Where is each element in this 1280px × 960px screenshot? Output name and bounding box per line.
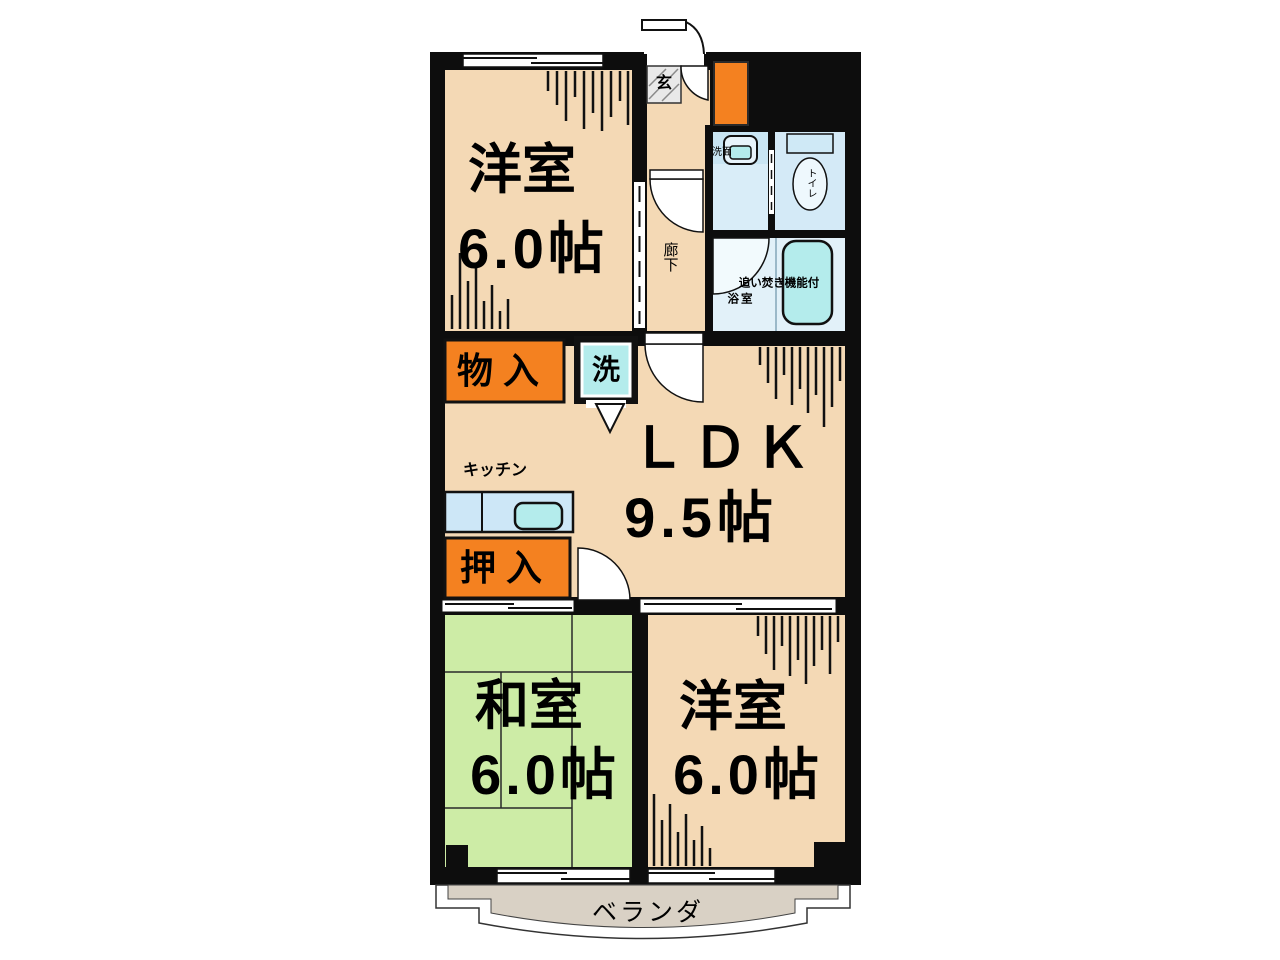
bath-feature-label: 追い焚き機能付 bbox=[739, 278, 820, 290]
entrance bbox=[642, 16, 708, 103]
room2-name: 洋室 bbox=[679, 680, 787, 734]
entrance-label: 玄 bbox=[656, 76, 672, 92]
room2-size: 6.0帖 bbox=[673, 747, 823, 803]
sliding-door-room1 bbox=[634, 182, 645, 328]
sliding-door-western-bottom bbox=[640, 599, 836, 613]
window-top bbox=[463, 54, 603, 67]
japanese-room-floor bbox=[445, 615, 632, 867]
toilet-label: トイレ bbox=[805, 168, 815, 198]
hallway-label: 廊下 bbox=[663, 242, 678, 272]
veranda-label: ベランダ bbox=[592, 901, 704, 926]
sliding-door-japanese bbox=[442, 600, 574, 612]
window-bottom-left bbox=[497, 869, 630, 883]
bath-label: 浴室 bbox=[728, 294, 755, 306]
pillar bbox=[446, 845, 468, 867]
washroom-label: 洗面 bbox=[712, 148, 732, 158]
room1-name: 洋室 bbox=[468, 143, 576, 197]
floorplan-page: 洋室 6.0帖 ＬＤＫ 9.5帖 和室 6.0帖 洋室 6.0帖 物入 押入 洗… bbox=[0, 0, 1280, 960]
japanese-room-name: 和室 bbox=[475, 679, 583, 733]
shoe-cabinet bbox=[714, 62, 748, 125]
room1-size: 6.0帖 bbox=[458, 221, 608, 277]
pillar bbox=[814, 842, 845, 867]
window-bottom-right bbox=[648, 869, 775, 883]
kitchen-sink bbox=[515, 503, 562, 529]
laundry-label: 洗 bbox=[592, 356, 620, 384]
floorplan-drawing bbox=[0, 0, 1280, 960]
toilet-tank bbox=[787, 134, 833, 153]
toilet-door bbox=[769, 150, 774, 214]
storage-label: 物入 bbox=[457, 353, 549, 389]
japanese-room-size: 6.0帖 bbox=[470, 747, 620, 803]
ldk-name: ＬＤＫ bbox=[630, 420, 816, 476]
closet-label: 押入 bbox=[460, 550, 552, 586]
ldk-size: 9.5帖 bbox=[624, 490, 778, 546]
entrance-door-leaf bbox=[642, 20, 686, 30]
kitchen-unit bbox=[445, 492, 573, 532]
kitchen-label: キッチン bbox=[463, 463, 527, 479]
